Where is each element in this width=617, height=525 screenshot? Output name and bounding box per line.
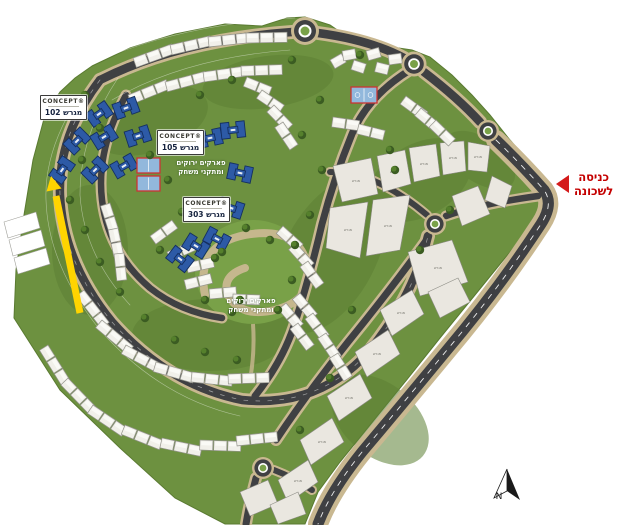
logo-divider [165,141,196,142]
svg-text:מגרש: מגרש [294,479,302,483]
plot-number: מגרש 303 [185,210,228,219]
site-map-canvas: מגרש מגרש מגרש מגרש מגרש מגרש מגרש מגרש … [0,0,617,525]
entrance-callout: כניסה לשכונה [556,170,613,198]
svg-text:מגרש: מגרש [384,224,392,228]
plot-number: מגרש 102 [42,108,85,117]
concept-logo: CONCEPT® [185,200,228,207]
plot-label-105: CONCEPT® מגרש 105 [157,130,204,155]
svg-text:מגרש: מגרש [345,396,353,400]
concept-logo: CONCEPT® [42,98,85,105]
entrance-arrow-icon [556,175,569,193]
park-annotation: פארקים ירוקים ומתקני משחק [218,297,284,314]
park-annotation-line1: פארקים ירוקים [218,297,284,306]
svg-text:מגרש: מגרש [397,311,405,315]
park-annotation: פארקים ירוקים ומתקני משחק [168,159,234,176]
roundabout [477,120,499,142]
entrance-label-line2: לשכונה [574,184,613,198]
plot-label-102: CONCEPT® מגרש 102 [40,95,87,120]
site-plan: מגרש מגרש מגרש מגרש מגרש מגרש מגרש מגרש … [0,0,617,525]
roundabout [291,17,319,45]
concept-logo: CONCEPT® [159,133,202,140]
svg-text:מגרש: מגרש [344,228,352,232]
park-annotation-line1: פארקים ירוקים [168,159,234,168]
sports-court [351,87,377,103]
svg-text:מגרש: מגרש [373,352,381,356]
plot-number: מגרש 105 [159,143,202,152]
north-compass-icon: N [494,469,520,502]
roundabout [252,457,274,479]
svg-text:מגרש: מגרש [352,179,360,183]
roundabout [402,52,427,77]
entrance-label-line1: כניסה [574,170,613,184]
logo-divider [48,106,79,107]
logo-divider [191,208,222,209]
entrance-label: כניסה לשכונה [574,170,613,198]
svg-text:מגרש: מגרש [474,155,482,159]
park-annotation-line2: ומתקני משחק [218,306,284,315]
compass-label: N [496,492,503,502]
plot-label-303: CONCEPT® מגרש 303 [183,197,230,222]
svg-text:מגרש: מגרש [434,266,442,270]
roundabout [424,213,446,235]
park-annotation-line2: ומתקני משחק [168,168,234,177]
svg-text:מגרש: מגרש [420,162,428,166]
svg-text:מגרש: מגרש [449,156,457,160]
svg-text:מגרש: מגרש [318,440,326,444]
